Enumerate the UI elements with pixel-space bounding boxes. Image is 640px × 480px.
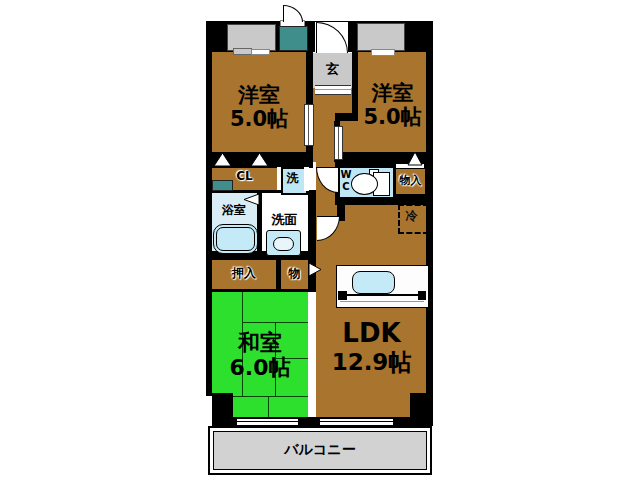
kitchen-counter-front-line (340, 301, 424, 302)
kitchen-sink (352, 271, 395, 294)
toilet-bowl (351, 173, 378, 195)
window-sash (320, 421, 393, 422)
kitchen-counter-edge (338, 294, 425, 296)
refrigerator-label: 冷 (398, 210, 425, 223)
window-top-right-sill (371, 49, 395, 56)
washroom-sink-bowl (273, 237, 294, 251)
window-top-left-tab (233, 48, 252, 55)
kitchen-counter-endcap-left (338, 291, 347, 300)
sliding-door-line (308, 105, 309, 145)
ldk-name: LDK (316, 320, 427, 347)
window-top-left (227, 24, 276, 51)
meter-box (279, 26, 308, 51)
balcony-label: バルコニー (210, 442, 430, 457)
wc-label-w: W (340, 170, 352, 181)
bathroom-label: 浴室 (212, 204, 256, 217)
bedroom-left-name: 洋室 (212, 84, 306, 106)
closet-cl-label: CL (212, 170, 277, 183)
window-ldk-south (320, 418, 393, 426)
floorplan-canvas: バルコニー 洋室 5.0帖 洋室 5.0帖 玄 CL 洗 浴室 洗面 W C 物… (0, 0, 640, 480)
wall-washroom-right (308, 190, 316, 255)
closet-door-marker (214, 153, 231, 166)
sliding-door-bedroomR (334, 126, 343, 160)
window-top-left-sill (251, 49, 270, 55)
storage-small-label: 物 (281, 267, 308, 280)
closet-door-marker (309, 263, 321, 276)
washer-gap-right (304, 167, 309, 191)
washer-label: 洗 (281, 172, 304, 185)
tatami-room-name: 和室 (212, 331, 308, 354)
window-tatami-south (237, 418, 298, 426)
wc-label-c: C (340, 182, 352, 193)
window-sash (237, 421, 298, 422)
window-top-right (357, 23, 405, 51)
ldk-size: 12.9帖 (316, 350, 427, 374)
closet-door-marker (251, 153, 268, 166)
tatami-line (268, 396, 269, 418)
door-arc-meter (283, 5, 303, 22)
bedroom-left-size: 5.0帖 (212, 108, 306, 130)
room-ldk (316, 205, 427, 418)
bathtub-inner (216, 227, 255, 251)
closet-door-marker (408, 152, 422, 165)
washroom-label: 洗面 (261, 213, 308, 227)
sliding-door-line (338, 127, 339, 159)
balcony: バルコニー (208, 426, 432, 475)
oshiire-label: 押入 (212, 267, 276, 280)
washroom-sink (266, 230, 301, 256)
bedroom-right-name: 洋室 (345, 82, 440, 104)
hall-column (313, 88, 335, 162)
bedroom-right-size: 5.0帖 (345, 106, 440, 128)
storage-right-label: 物入 (396, 175, 425, 187)
kitchen-counter (336, 265, 429, 308)
kitchen-counter-endcap-right (418, 291, 426, 300)
tatami-room-size: 6.0帖 (212, 356, 308, 379)
bathtub (213, 224, 258, 254)
entrance-label: 玄 (313, 62, 352, 76)
